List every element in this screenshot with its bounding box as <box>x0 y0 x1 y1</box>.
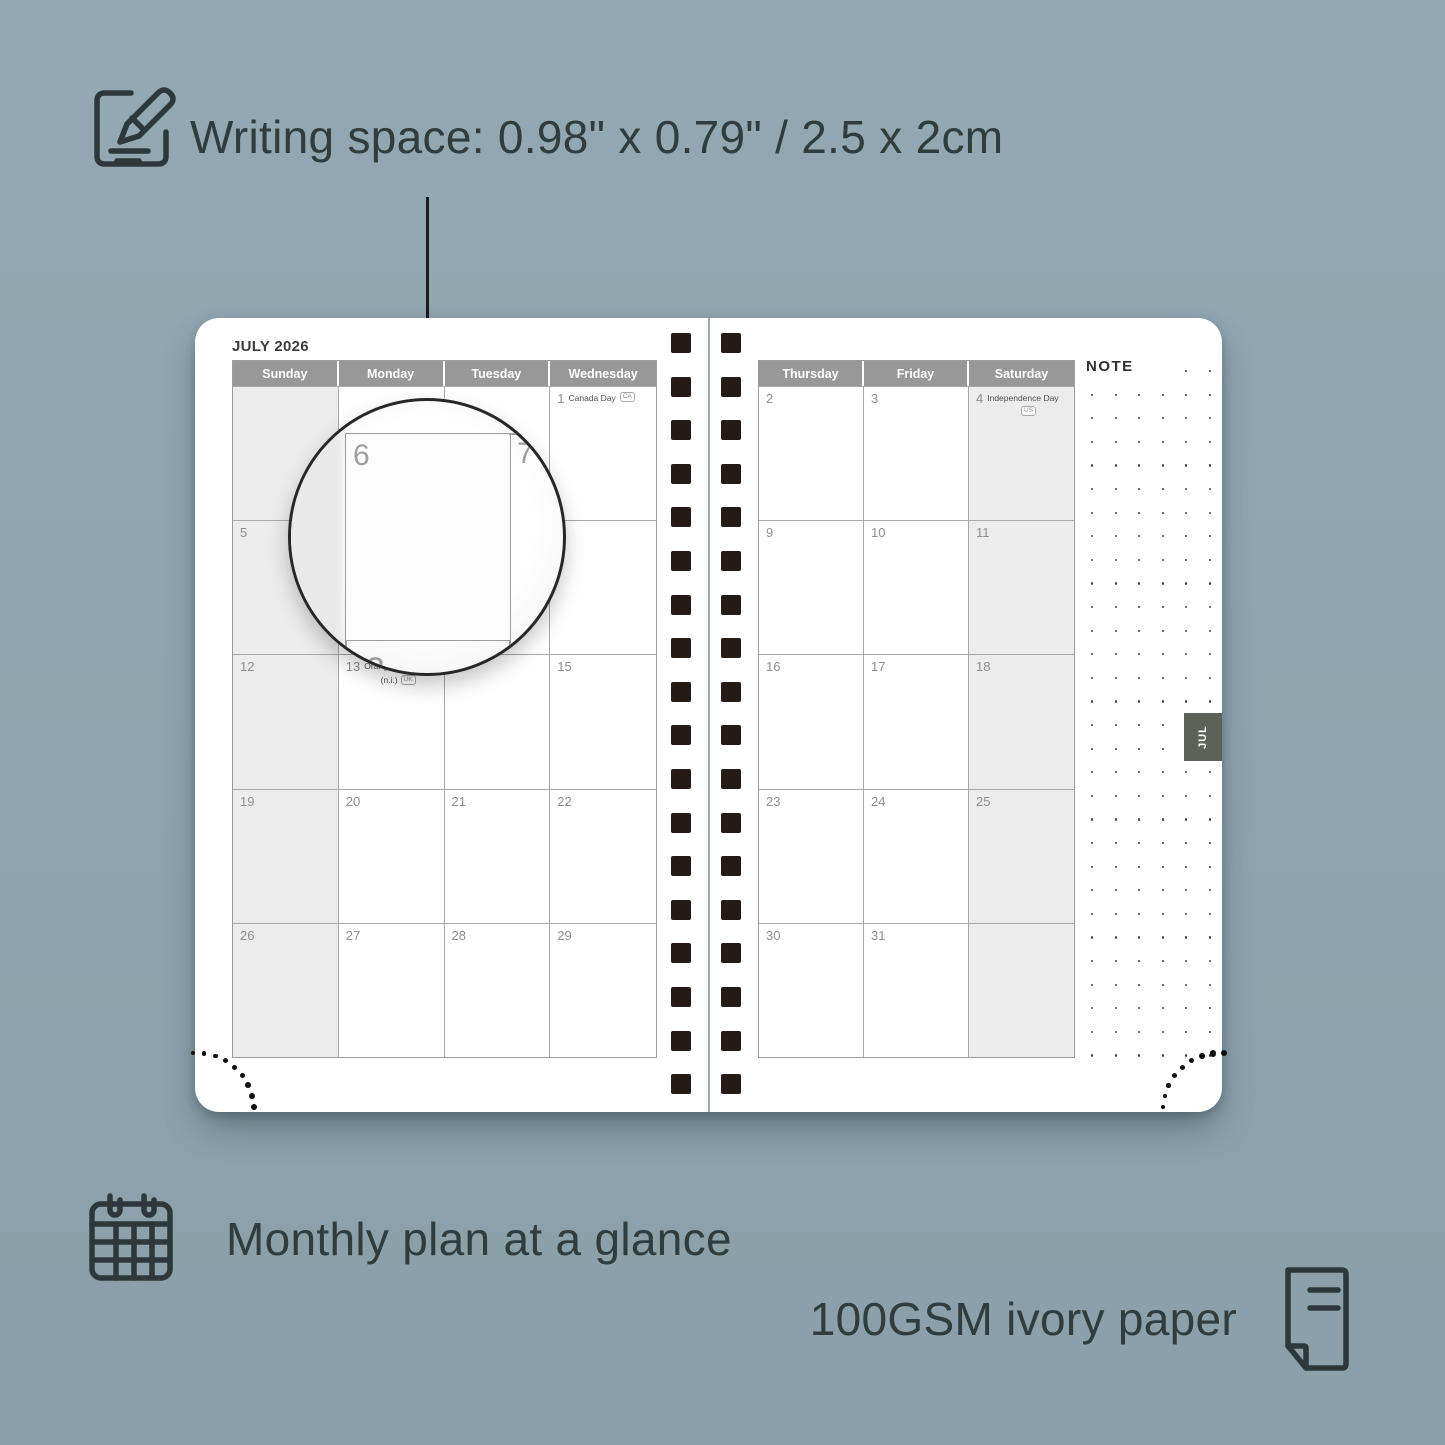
holiday-label: Independence Day <box>987 392 1058 404</box>
note-dot <box>1115 842 1117 844</box>
calendar-cell: 16 <box>759 654 864 788</box>
perforation-dot <box>1199 1053 1205 1059</box>
day-number: 29 <box>557 929 571 942</box>
spiral-hole <box>721 377 741 397</box>
calendar-cell: 9 <box>759 520 864 654</box>
note-dot <box>1209 818 1211 820</box>
note-dot <box>1209 842 1211 844</box>
spiral-hole <box>721 1074 741 1094</box>
note-dot <box>1091 960 1093 962</box>
note-dot <box>1185 889 1187 891</box>
note-dot <box>1138 936 1140 938</box>
note-label: NOTE <box>1086 358 1134 375</box>
note-dot <box>1162 866 1164 868</box>
spiral-hole <box>721 551 741 571</box>
day-number: 10 <box>871 526 885 539</box>
note-dot <box>1115 559 1117 561</box>
note-dot <box>1138 1031 1140 1033</box>
note-dot <box>1115 630 1117 632</box>
calendar-cell: 24 <box>864 789 969 923</box>
perforation-dot <box>1221 1050 1227 1056</box>
day-number: 12 <box>240 660 254 673</box>
note-dot <box>1138 960 1140 962</box>
note-dot <box>1162 441 1164 443</box>
day-header: Thursday <box>759 361 864 386</box>
spiral-hole <box>721 595 741 615</box>
note-dot <box>1185 1054 1187 1056</box>
note-dot <box>1115 394 1117 396</box>
calendar-week-row: 91011 <box>759 520 1074 654</box>
note-dot <box>1115 1031 1117 1033</box>
note-dot <box>1138 866 1140 868</box>
note-dot <box>1162 535 1164 537</box>
calendar-cell: 26 <box>233 923 339 1057</box>
day-header: Tuesday <box>445 361 551 386</box>
spiral-hole <box>671 943 691 963</box>
calendar-cell: 20 <box>339 789 445 923</box>
spiral-hole <box>721 813 741 833</box>
note-dot <box>1115 724 1117 726</box>
note-dot <box>1209 1007 1211 1009</box>
perforation-dot <box>213 1054 218 1059</box>
note-dot <box>1185 936 1187 938</box>
note-dot <box>1209 1031 1211 1033</box>
note-dot <box>1091 984 1093 986</box>
day-header: Wednesday <box>550 361 656 386</box>
page-gutter <box>708 318 710 1112</box>
calendar-cell: 23 <box>759 789 864 923</box>
note-dot <box>1185 559 1187 561</box>
note-dot <box>1209 677 1211 679</box>
calendar-week-row: 234Independence DayUS <box>759 386 1074 520</box>
note-dot <box>1138 842 1140 844</box>
day-number: 2 <box>766 392 773 405</box>
note-dot <box>1091 1007 1093 1009</box>
note-dot <box>1185 700 1187 702</box>
spiral-hole <box>721 638 741 658</box>
country-badge: US <box>1021 406 1036 416</box>
spiral-hole <box>721 333 741 353</box>
spiral-hole <box>721 987 741 1007</box>
note-dot <box>1115 960 1117 962</box>
spiral-hole <box>671 987 691 1007</box>
day-number: 31 <box>871 929 885 942</box>
note-dot <box>1162 795 1164 797</box>
note-dot <box>1091 842 1093 844</box>
calendar-cell: 3 <box>864 386 969 520</box>
note-dot <box>1185 630 1187 632</box>
note-dot <box>1209 370 1211 372</box>
note-dot <box>1162 936 1164 938</box>
note-dot <box>1209 700 1211 702</box>
note-dot <box>1115 1007 1117 1009</box>
note-dot <box>1162 889 1164 891</box>
note-dot <box>1091 1031 1093 1033</box>
note-dot <box>1138 1007 1140 1009</box>
note-dot <box>1138 653 1140 655</box>
calendar-grid-right: ThursdayFridaySaturday234Independence Da… <box>758 360 1075 1058</box>
note-dot <box>1138 512 1140 514</box>
spiral-hole <box>671 507 691 527</box>
note-dot <box>1115 795 1117 797</box>
day-number: 24 <box>871 795 885 808</box>
note-dot <box>1185 582 1187 584</box>
note-dot <box>1209 512 1211 514</box>
note-dot <box>1091 630 1093 632</box>
calendar-cell: 18 <box>969 654 1074 788</box>
note-dot <box>1115 417 1117 419</box>
note-dot <box>1091 488 1093 490</box>
day-number: 26 <box>240 929 254 942</box>
day-number: 28 <box>452 929 466 942</box>
spiral-hole <box>721 769 741 789</box>
note-dot <box>1138 535 1140 537</box>
calendar-cell: 1Canada DayCA <box>550 386 656 520</box>
perforation-dot <box>1163 1094 1167 1098</box>
month-tab-label: JUL <box>1197 725 1209 749</box>
note-dot <box>1138 630 1140 632</box>
spiral-hole <box>671 551 691 571</box>
spiral-hole <box>721 1031 741 1051</box>
note-dot <box>1209 866 1211 868</box>
day-header: Sunday <box>233 361 339 386</box>
note-dot <box>1185 818 1187 820</box>
note-dot <box>1209 464 1211 466</box>
calendar-cell: 31 <box>864 923 969 1057</box>
spiral-hole <box>721 420 741 440</box>
note-dot <box>1091 818 1093 820</box>
note-dot <box>1162 630 1164 632</box>
note-dot <box>1185 653 1187 655</box>
spiral-hole <box>671 1031 691 1051</box>
perforation-dot <box>1180 1065 1185 1070</box>
note-dot <box>1162 677 1164 679</box>
spiral-hole <box>671 769 691 789</box>
note-dot <box>1209 960 1211 962</box>
note-dot <box>1185 512 1187 514</box>
calendar-cell: 17 <box>864 654 969 788</box>
perforation-dot <box>1166 1083 1171 1088</box>
note-dot <box>1162 606 1164 608</box>
note-dot <box>1162 842 1164 844</box>
calendar-cell: 11 <box>969 520 1074 654</box>
note-dot <box>1115 889 1117 891</box>
note-dot <box>1185 1007 1187 1009</box>
note-dot <box>1091 512 1093 514</box>
day-number: 17 <box>871 660 885 673</box>
note-dot <box>1185 771 1187 773</box>
note-dot <box>1115 464 1117 466</box>
spiral-hole <box>671 856 691 876</box>
spiral-hole <box>671 464 691 484</box>
note-dot <box>1185 417 1187 419</box>
day-number: 20 <box>346 795 360 808</box>
calendar-week-row: 19202122 <box>233 789 656 923</box>
spiral-hole <box>671 638 691 658</box>
planner-right-page: ThursdayFridaySaturday234Independence Da… <box>709 318 1222 1112</box>
note-dot <box>1115 677 1117 679</box>
note-dot <box>1091 913 1093 915</box>
note-dot <box>1209 984 1211 986</box>
note-dot <box>1115 771 1117 773</box>
note-dot <box>1209 653 1211 655</box>
day-number: 3 <box>871 392 878 405</box>
spiral-hole <box>671 333 691 353</box>
note-dot <box>1091 724 1093 726</box>
perforation-dot <box>1172 1073 1177 1078</box>
magnified-day-13: 13 <box>347 651 385 676</box>
note-dot <box>1162 960 1164 962</box>
note-dot <box>1162 984 1164 986</box>
country-badge: CA <box>620 392 635 402</box>
note-dot <box>1209 417 1211 419</box>
holiday-label: Canada Day <box>568 392 615 404</box>
note-dot <box>1138 795 1140 797</box>
note-dot <box>1185 394 1187 396</box>
month-title: JULY 2026 <box>232 338 309 355</box>
monthly-plan-caption: Monthly plan at a glance <box>226 1212 732 1266</box>
note-dot <box>1091 1054 1093 1056</box>
note-dot <box>1115 535 1117 537</box>
calendar-cell: 10 <box>864 520 969 654</box>
spiral-hole <box>671 900 691 920</box>
note-dot <box>1185 984 1187 986</box>
note-dot <box>1115 818 1117 820</box>
note-dot <box>1185 535 1187 537</box>
note-dot <box>1091 700 1093 702</box>
note-dot <box>1209 582 1211 584</box>
product-infographic: Writing space: 0.98" x 0.79" / 2.5 x 2cm… <box>0 0 1445 1445</box>
note-dot <box>1138 889 1140 891</box>
note-dot <box>1185 913 1187 915</box>
calendar-week-row: 161718 <box>759 654 1074 788</box>
note-dot <box>1091 535 1093 537</box>
note-dot <box>1162 512 1164 514</box>
note-dot <box>1185 866 1187 868</box>
paper-icon <box>1280 1264 1354 1378</box>
day-number: 16 <box>766 660 780 673</box>
day-number: 21 <box>452 795 466 808</box>
note-dot <box>1185 370 1187 372</box>
calendar-cell: 19 <box>233 789 339 923</box>
note-dot <box>1115 984 1117 986</box>
country-badge: UK <box>401 675 416 685</box>
note-dot <box>1162 724 1164 726</box>
note-dot <box>1185 606 1187 608</box>
note-dot <box>1209 913 1211 915</box>
note-dot <box>1091 464 1093 466</box>
note-dot <box>1185 488 1187 490</box>
note-dot <box>1162 464 1164 466</box>
spiral-hole <box>721 900 741 920</box>
day-number: 4 <box>976 392 983 405</box>
note-dot <box>1138 417 1140 419</box>
note-dot <box>1115 606 1117 608</box>
note-dot <box>1209 394 1211 396</box>
note-dot <box>1138 441 1140 443</box>
calendar-week-row: 232425 <box>759 789 1074 923</box>
month-tab: JUL <box>1184 713 1222 761</box>
note-dot <box>1185 795 1187 797</box>
day-number: 22 <box>557 795 571 808</box>
note-dot <box>1138 818 1140 820</box>
calendar-week-row: 26272829 <box>233 923 656 1057</box>
note-dot <box>1138 700 1140 702</box>
note-dot <box>1091 653 1093 655</box>
day-number: 11 <box>976 526 990 539</box>
calendar-cell: 28 <box>445 923 551 1057</box>
note-dot <box>1162 488 1164 490</box>
note-dot <box>1115 582 1117 584</box>
spiral-hole <box>721 507 741 527</box>
note-dot <box>1185 960 1187 962</box>
note-dot <box>1162 748 1164 750</box>
note-dot <box>1185 1031 1187 1033</box>
note-dot <box>1138 748 1140 750</box>
writing-space-rectangle <box>345 433 511 641</box>
note-dot <box>1091 748 1093 750</box>
note-dot <box>1185 677 1187 679</box>
paper-caption: 100GSM ivory paper <box>810 1292 1237 1346</box>
note-dot <box>1162 818 1164 820</box>
spiral-hole <box>671 595 691 615</box>
note-dot <box>1162 559 1164 561</box>
note-dot <box>1162 700 1164 702</box>
note-dot <box>1091 582 1093 584</box>
note-dot <box>1209 488 1211 490</box>
note-dot <box>1115 512 1117 514</box>
note-dot <box>1138 464 1140 466</box>
note-dot <box>1115 936 1117 938</box>
note-dot <box>1185 842 1187 844</box>
day-number: 9 <box>766 526 773 539</box>
day-header: Friday <box>864 361 969 386</box>
note-dot <box>1162 582 1164 584</box>
day-number: 18 <box>976 660 990 673</box>
day-number: 30 <box>766 929 780 942</box>
note-dot <box>1209 795 1211 797</box>
day-header: Saturday <box>969 361 1074 386</box>
note-dot <box>1162 417 1164 419</box>
holiday-label: (n.i.) <box>381 674 398 686</box>
writing-space-caption: Writing space: 0.98" x 0.79" / 2.5 x 2cm <box>190 110 1003 164</box>
day-header: Monday <box>339 361 445 386</box>
note-dot <box>1091 936 1093 938</box>
note-dot <box>1162 394 1164 396</box>
calendar-cell: 22 <box>550 789 656 923</box>
note-dot <box>1115 488 1117 490</box>
calendar-icon <box>82 1186 180 1284</box>
calendar-cell <box>969 923 1074 1057</box>
note-dot <box>1209 441 1211 443</box>
calendar-cell: 30 <box>759 923 864 1057</box>
magnified-shaded-column <box>288 398 343 676</box>
note-dot <box>1091 606 1093 608</box>
note-dot <box>1162 1054 1164 1056</box>
note-pencil-icon <box>84 80 180 176</box>
day-number: 23 <box>766 795 780 808</box>
calendar-cell: 27 <box>339 923 445 1057</box>
note-dot <box>1091 795 1093 797</box>
spiral-hole <box>671 682 691 702</box>
note-dot <box>1185 441 1187 443</box>
note-dot <box>1162 913 1164 915</box>
note-dot <box>1115 866 1117 868</box>
note-dot <box>1209 535 1211 537</box>
note-dot <box>1115 653 1117 655</box>
note-dot <box>1138 913 1140 915</box>
spiral-hole <box>721 464 741 484</box>
note-dot <box>1138 488 1140 490</box>
day-number: 25 <box>976 795 990 808</box>
day-number: 27 <box>346 929 360 942</box>
note-dot <box>1115 1054 1117 1056</box>
note-dot <box>1138 771 1140 773</box>
spiral-hole <box>671 725 691 745</box>
note-dot <box>1115 700 1117 702</box>
calendar-cell: 4Independence DayUS <box>969 386 1074 520</box>
day-number: 5 <box>240 526 247 539</box>
spiral-hole <box>721 856 741 876</box>
spiral-hole <box>671 420 691 440</box>
note-dot <box>1091 677 1093 679</box>
note-dot <box>1091 559 1093 561</box>
note-dot <box>1138 1054 1140 1056</box>
note-dot <box>1209 771 1211 773</box>
note-dot <box>1209 936 1211 938</box>
note-dot <box>1209 606 1211 608</box>
calendar-cell: 8 <box>550 520 656 654</box>
day-number: 15 <box>557 660 571 673</box>
calendar-cell: 15 <box>550 654 656 788</box>
magnified-day-6: 6 <box>353 439 370 473</box>
note-dot <box>1138 394 1140 396</box>
note-dot <box>1162 1007 1164 1009</box>
magnified-day-7: 7 <box>517 437 534 471</box>
note-dot <box>1209 630 1211 632</box>
day-number: 19 <box>240 795 254 808</box>
calendar-cell: 14 <box>445 654 551 788</box>
calendar-cell: 29 <box>550 923 656 1057</box>
calendar-cell: 25 <box>969 789 1074 923</box>
note-dot <box>1209 559 1211 561</box>
note-dot <box>1091 394 1093 396</box>
day-number: 1 <box>557 392 564 405</box>
note-dot <box>1138 724 1140 726</box>
spiral-hole <box>721 725 741 745</box>
note-dot <box>1162 771 1164 773</box>
magnifier-circle: 6 7 13 <box>288 398 566 676</box>
note-dot <box>1091 771 1093 773</box>
note-dot <box>1115 913 1117 915</box>
note-dot <box>1138 582 1140 584</box>
note-dot <box>1091 866 1093 868</box>
note-dot <box>1138 559 1140 561</box>
note-dot <box>1115 441 1117 443</box>
note-dot <box>1115 748 1117 750</box>
magnified-grid-line <box>509 433 566 435</box>
note-dot <box>1091 441 1093 443</box>
spiral-hole <box>721 943 741 963</box>
note-dot <box>1138 606 1140 608</box>
spiral-hole <box>671 377 691 397</box>
calendar-week-row: 3031 <box>759 923 1074 1057</box>
note-dot <box>1209 889 1211 891</box>
perforation-dot <box>1210 1050 1216 1056</box>
note-dot <box>1162 1031 1164 1033</box>
note-dot <box>1091 889 1093 891</box>
spiral-hole <box>671 813 691 833</box>
